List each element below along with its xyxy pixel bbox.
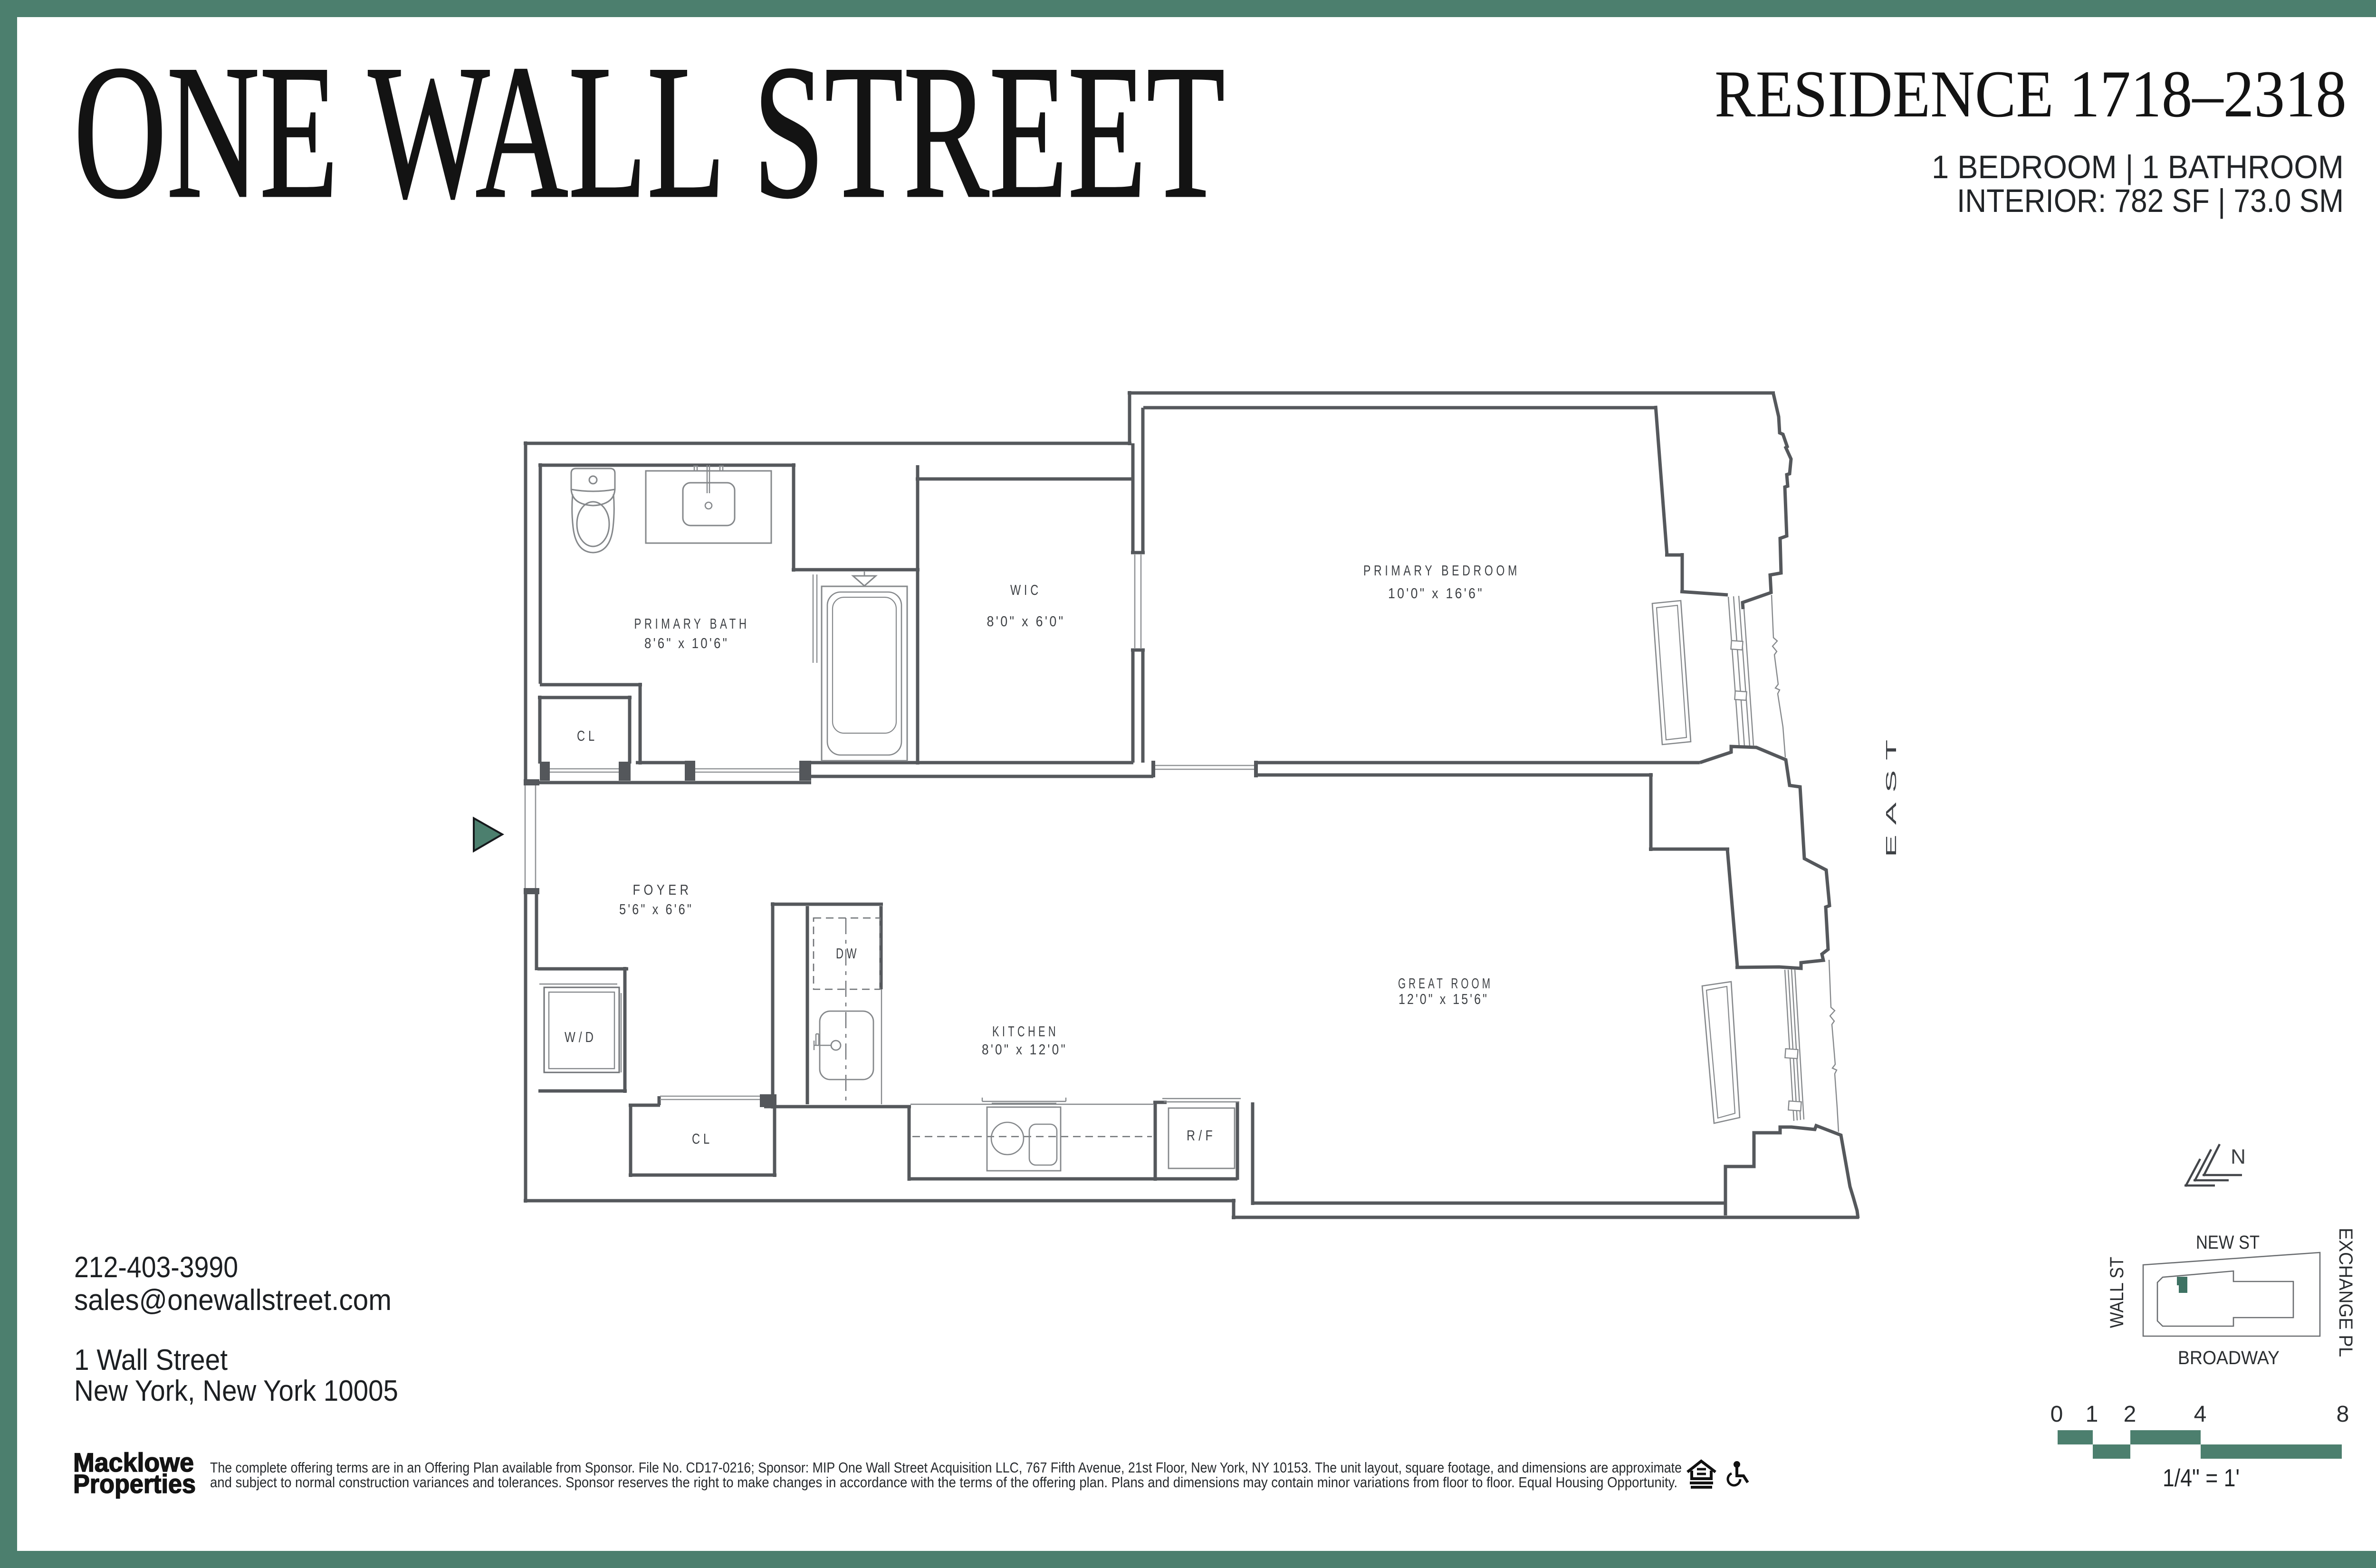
svg-text:212-403-3990: 212-403-3990: [74, 1251, 238, 1284]
svg-text:1 Wall Street: 1 Wall Street: [74, 1344, 228, 1377]
svg-text:1 BEDROOM | 1 BATHROOM: 1 BEDROOM | 1 BATHROOM: [1932, 149, 2344, 185]
svg-text:EXCHANGE PL: EXCHANGE PL: [2335, 1228, 2356, 1357]
svg-text:Properties: Properties: [73, 1469, 196, 1499]
svg-text:1: 1: [2086, 1402, 2098, 1427]
svg-text:8'0" x 12'0": 8'0" x 12'0": [982, 1041, 1067, 1058]
svg-text:WALL ST: WALL ST: [2107, 1257, 2127, 1328]
svg-text:W/D: W/D: [565, 1029, 597, 1045]
svg-text:sales@onewallstreet.com: sales@onewallstreet.com: [74, 1284, 392, 1317]
svg-text:BROADWAY: BROADWAY: [2178, 1348, 2280, 1368]
svg-text:KITCHEN: KITCHEN: [992, 1023, 1059, 1040]
svg-text:EAST: EAST: [1883, 730, 1899, 857]
svg-text:and subject to normal construc: and subject to normal construction varia…: [210, 1474, 1677, 1491]
svg-text:5'6" x 6'6": 5'6" x 6'6": [619, 901, 693, 918]
svg-text:The complete offering terms ar: The complete offering terms are in an Of…: [210, 1459, 1682, 1476]
svg-text:N: N: [2231, 1145, 2246, 1168]
svg-text:NEW ST: NEW ST: [2196, 1232, 2260, 1253]
svg-text:INTERIOR: 782 SF | 73.0 SM: INTERIOR: 782 SF | 73.0 SM: [1957, 182, 2344, 219]
svg-text:R/F: R/F: [1187, 1127, 1216, 1144]
svg-text:8'0" x 6'0": 8'0" x 6'0": [987, 613, 1065, 630]
svg-text:8: 8: [2337, 1402, 2349, 1427]
svg-text:8'6" x 10'6": 8'6" x 10'6": [644, 635, 729, 651]
svg-text:2: 2: [2124, 1402, 2136, 1427]
svg-text:New York, New York 10005: New York, New York 10005: [74, 1375, 398, 1407]
svg-text:CL: CL: [692, 1130, 713, 1147]
svg-text:ONE WALL STREET: ONE WALL STREET: [74, 26, 1225, 238]
svg-text:DW: DW: [836, 945, 860, 962]
svg-text:RESIDENCE 1718–2318: RESIDENCE 1718–2318: [1715, 57, 2347, 131]
svg-text:PRIMARY BATH: PRIMARY BATH: [634, 615, 750, 632]
svg-text:CL: CL: [577, 727, 598, 744]
svg-text:PRIMARY BEDROOM: PRIMARY BEDROOM: [1363, 562, 1520, 579]
svg-text:4: 4: [2194, 1402, 2207, 1427]
svg-text:10'0" x 16'6": 10'0" x 16'6": [1388, 585, 1484, 602]
svg-text:GREAT ROOM: GREAT ROOM: [1398, 975, 1493, 992]
svg-text:1/4" = 1': 1/4" = 1': [2163, 1464, 2240, 1492]
svg-text:12'0" x 15'6": 12'0" x 15'6": [1399, 991, 1489, 1007]
svg-text:WIC: WIC: [1010, 582, 1042, 598]
svg-text:0: 0: [2050, 1402, 2063, 1427]
svg-text:FOYER: FOYER: [633, 881, 692, 898]
